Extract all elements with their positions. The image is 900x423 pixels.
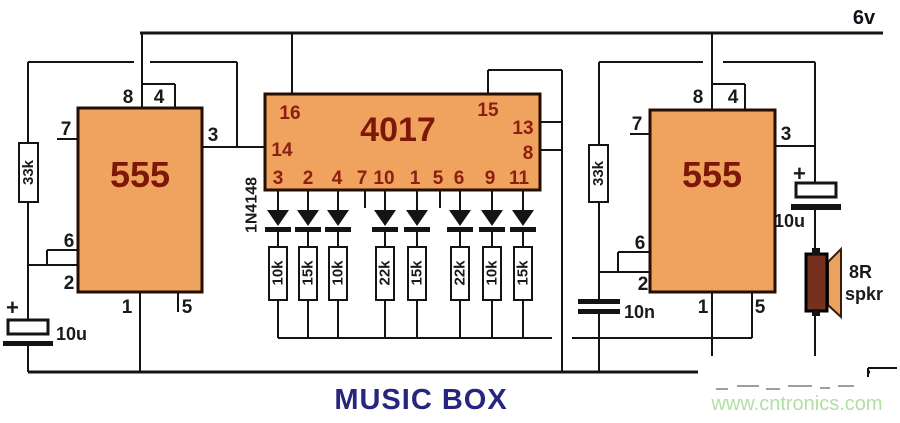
speaker-body — [806, 254, 827, 311]
diode-icon — [267, 210, 289, 226]
timing-resistor-left: 33k — [19, 143, 38, 202]
resistor-value: 15k — [515, 260, 532, 286]
diode-cathode-bar — [479, 227, 505, 232]
pin-label-6: 6 — [454, 168, 465, 189]
cap-value-label: 10n — [624, 302, 655, 322]
speaker-terminal-top — [812, 248, 820, 255]
pin-label-6: 6 — [635, 233, 646, 254]
ic-body — [650, 110, 775, 292]
pin-label-11: 11 — [509, 168, 530, 189]
cap-top-plate — [796, 183, 836, 197]
diode-type-label: 1N4148 — [244, 177, 261, 233]
pin-label-2: 2 — [64, 273, 75, 294]
diode-cathode-bar — [265, 227, 291, 232]
speaker-cone — [828, 249, 841, 317]
pin-label-3: 3 — [273, 168, 284, 189]
pin-label-14: 14 — [271, 140, 293, 161]
resistor-value: 33k — [20, 159, 37, 185]
ic-left-555: 555 8 4 7 3 6 2 1 5 — [61, 87, 219, 318]
ground-rail-end-jog — [868, 368, 897, 377]
pin-label-7: 7 — [632, 114, 643, 135]
pin-label-5: 5 — [755, 297, 766, 318]
diode-icon — [449, 210, 471, 226]
resistor-value: 33k — [590, 160, 607, 186]
music-box-schematic: 10k 15k 10k 22k — [0, 0, 900, 423]
electrolytic-cap-right: + 10u — [774, 161, 841, 231]
resistor-value: 22k — [452, 260, 469, 286]
pin-label-9: 9 — [485, 168, 496, 189]
diode-cathode-bar — [510, 227, 536, 232]
electrolytic-cap-left: + 10u — [3, 295, 87, 346]
diode-icon — [297, 210, 319, 226]
ic-part-number: 4017 — [360, 111, 436, 149]
polarity-plus-sign: + — [6, 295, 19, 320]
output-column-4: 22k — [372, 190, 398, 338]
speaker-impedance-label: 8R — [849, 262, 872, 282]
pin-label-7: 7 — [61, 119, 72, 140]
pin-label-13: 13 — [512, 118, 533, 139]
pin-label-2: 2 — [303, 168, 314, 189]
cap-value-label: 10u — [56, 324, 87, 344]
watermark-url: www.cntronics.com — [710, 393, 882, 415]
resistor-value: 10k — [270, 260, 287, 286]
pin-label-8: 8 — [123, 87, 134, 108]
speaker: 8R spkr — [806, 248, 883, 317]
diode-cathode-bar — [325, 227, 351, 232]
output-column-7: 10k — [479, 190, 505, 338]
timing-resistor-right: 33k — [589, 145, 608, 202]
output-column-2: 15k — [295, 190, 321, 338]
ic-part-number: 555 — [110, 154, 170, 195]
cap-bottom-plate — [3, 341, 53, 346]
right555-pin6-jog — [618, 252, 650, 272]
counter-pin15-wire — [488, 70, 562, 94]
cap-bottom-plate — [578, 309, 620, 314]
cap-value-label: 10u — [774, 211, 805, 231]
output-column-5: 15k — [404, 190, 430, 338]
speaker-name-label: spkr — [845, 284, 883, 304]
resistor-value: 10k — [330, 260, 347, 286]
ic-body — [78, 108, 202, 292]
pin-label-4: 4 — [154, 87, 165, 108]
diode-icon — [374, 210, 396, 226]
resistor-value: 22k — [377, 260, 394, 286]
pin-label-5: 5 — [182, 297, 193, 318]
diode-cathode-bar — [447, 227, 473, 232]
pin-label-3: 3 — [781, 124, 792, 145]
diode-icon — [327, 210, 349, 226]
diode-resistor-network: 10k 15k 10k 22k — [244, 177, 537, 338]
ic-right-555: 555 8 4 7 3 6 2 1 5 — [632, 87, 792, 318]
pin-label-8: 8 — [523, 143, 534, 164]
pin-label-15: 15 — [477, 100, 499, 121]
resistor-value: 10k — [484, 260, 501, 286]
pin-label-8: 8 — [693, 87, 704, 108]
supply-voltage-label: 6v — [853, 7, 876, 29]
schematic-canvas: 10k 15k 10k 22k — [0, 0, 900, 423]
output-column-6: 22k — [447, 190, 473, 338]
pin-label-4: 4 — [728, 87, 739, 108]
cap-top-plate — [8, 320, 48, 334]
cap-10n: 10n — [578, 299, 655, 322]
left555-pin6-jog — [47, 250, 78, 265]
output-column-8: 15k — [510, 190, 536, 338]
pin-label-1: 1 — [698, 297, 709, 318]
diode-cathode-bar — [295, 227, 321, 232]
watermark-area: www.cntronics.com — [698, 356, 897, 415]
pin-label-1: 1 — [122, 297, 133, 318]
diode-icon — [512, 210, 534, 226]
schematic-title: MUSIC BOX — [334, 384, 507, 416]
pin-label-5: 5 — [433, 168, 444, 189]
ic-4017: 4017 16 15 14 13 8 3 2 4 7 10 1 5 6 9 11 — [265, 94, 540, 190]
cap-bottom-plate — [791, 204, 841, 210]
pin-label-1: 1 — [410, 168, 421, 189]
pin-label-3: 3 — [208, 125, 219, 146]
diode-icon — [406, 210, 428, 226]
resistor-value: 15k — [409, 260, 426, 286]
diode-cathode-bar — [404, 227, 430, 232]
pin-label-6: 6 — [64, 231, 75, 252]
diode-icon — [481, 210, 503, 226]
pin-label-4: 4 — [332, 168, 343, 189]
ic-part-number: 555 — [682, 154, 742, 195]
cap-top-plate — [578, 299, 620, 304]
pin-label-10: 10 — [373, 168, 394, 189]
pin-label-16: 16 — [279, 103, 300, 124]
speaker-terminal-bottom — [812, 309, 820, 316]
resistor-value: 15k — [300, 260, 317, 286]
pin-label-2: 2 — [638, 274, 649, 295]
diode-cathode-bar — [372, 227, 398, 232]
output-column-3: 10k — [325, 190, 351, 338]
pin-label-7: 7 — [357, 168, 368, 189]
output-column-1: 10k — [265, 190, 291, 338]
